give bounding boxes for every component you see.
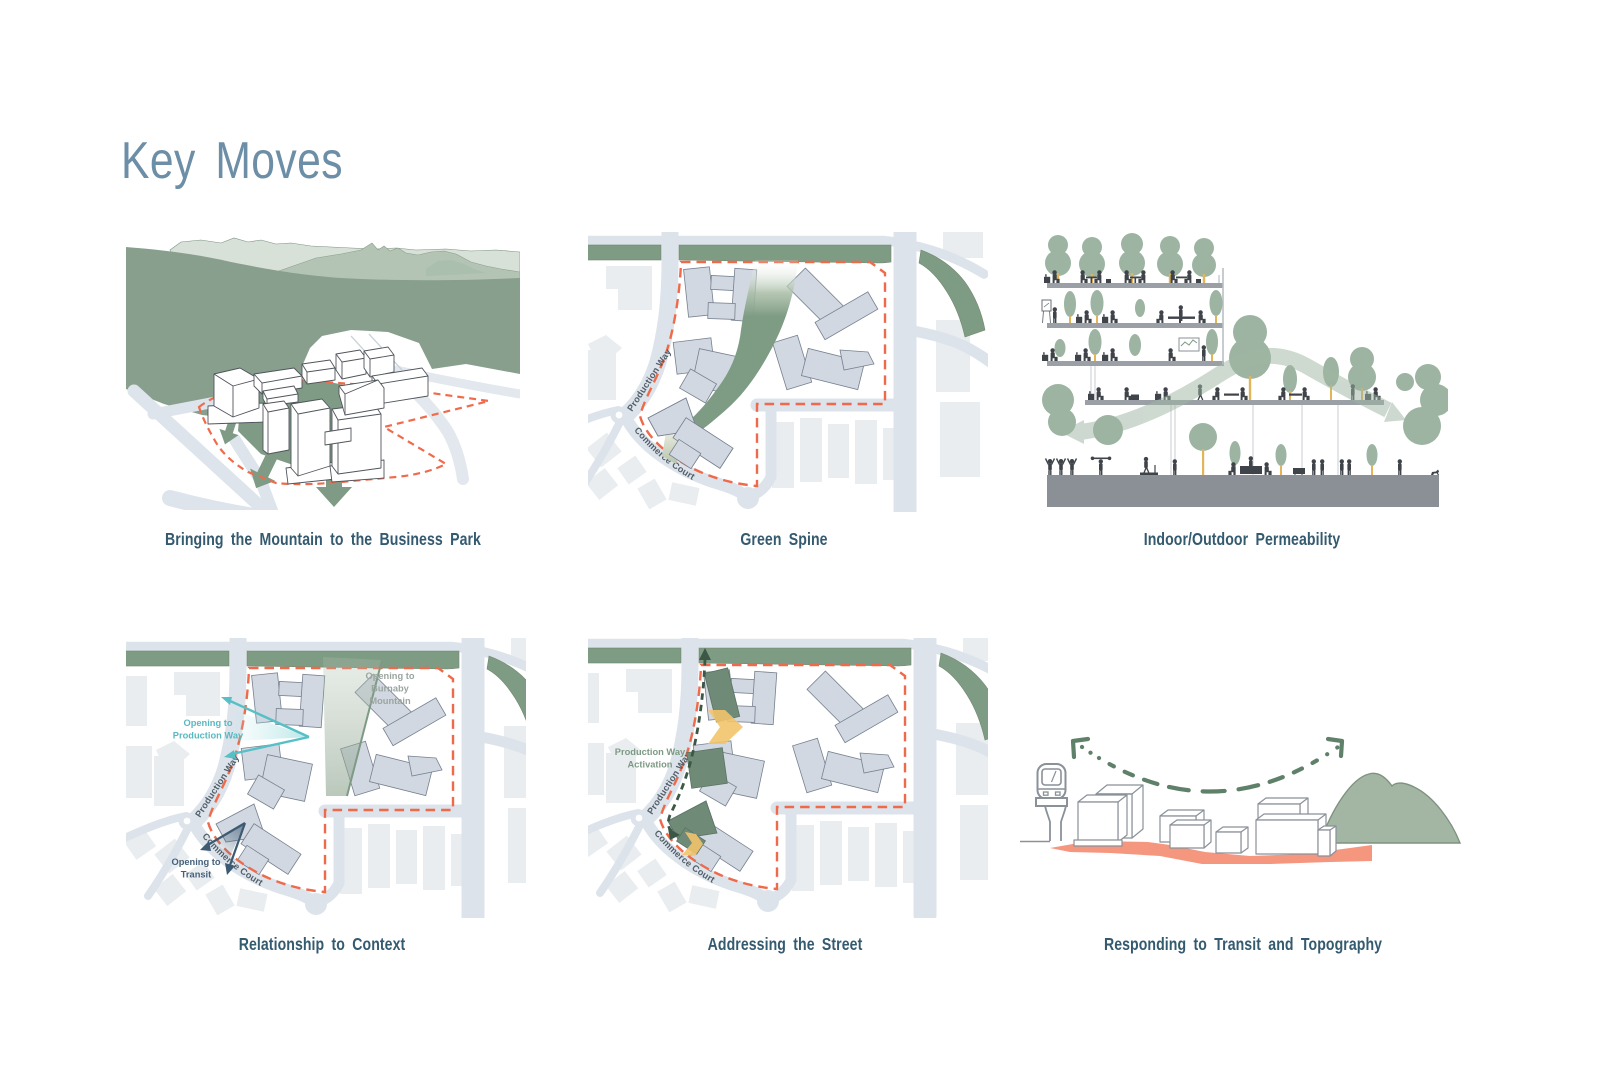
- svg-text:Opening to: Opening to: [183, 718, 232, 728]
- svg-text:Opening to: Opening to: [171, 857, 220, 867]
- svg-text:Burnaby: Burnaby: [371, 684, 410, 694]
- svg-text:Opening to: Opening to: [365, 671, 414, 681]
- svg-text:Activation: Activation: [628, 760, 673, 770]
- svg-text:Production Way: Production Way: [173, 731, 244, 741]
- svg-text:Transit: Transit: [181, 870, 211, 880]
- svg-text:Production Way: Production Way: [615, 747, 686, 757]
- svg-text:Mountain: Mountain: [369, 696, 411, 706]
